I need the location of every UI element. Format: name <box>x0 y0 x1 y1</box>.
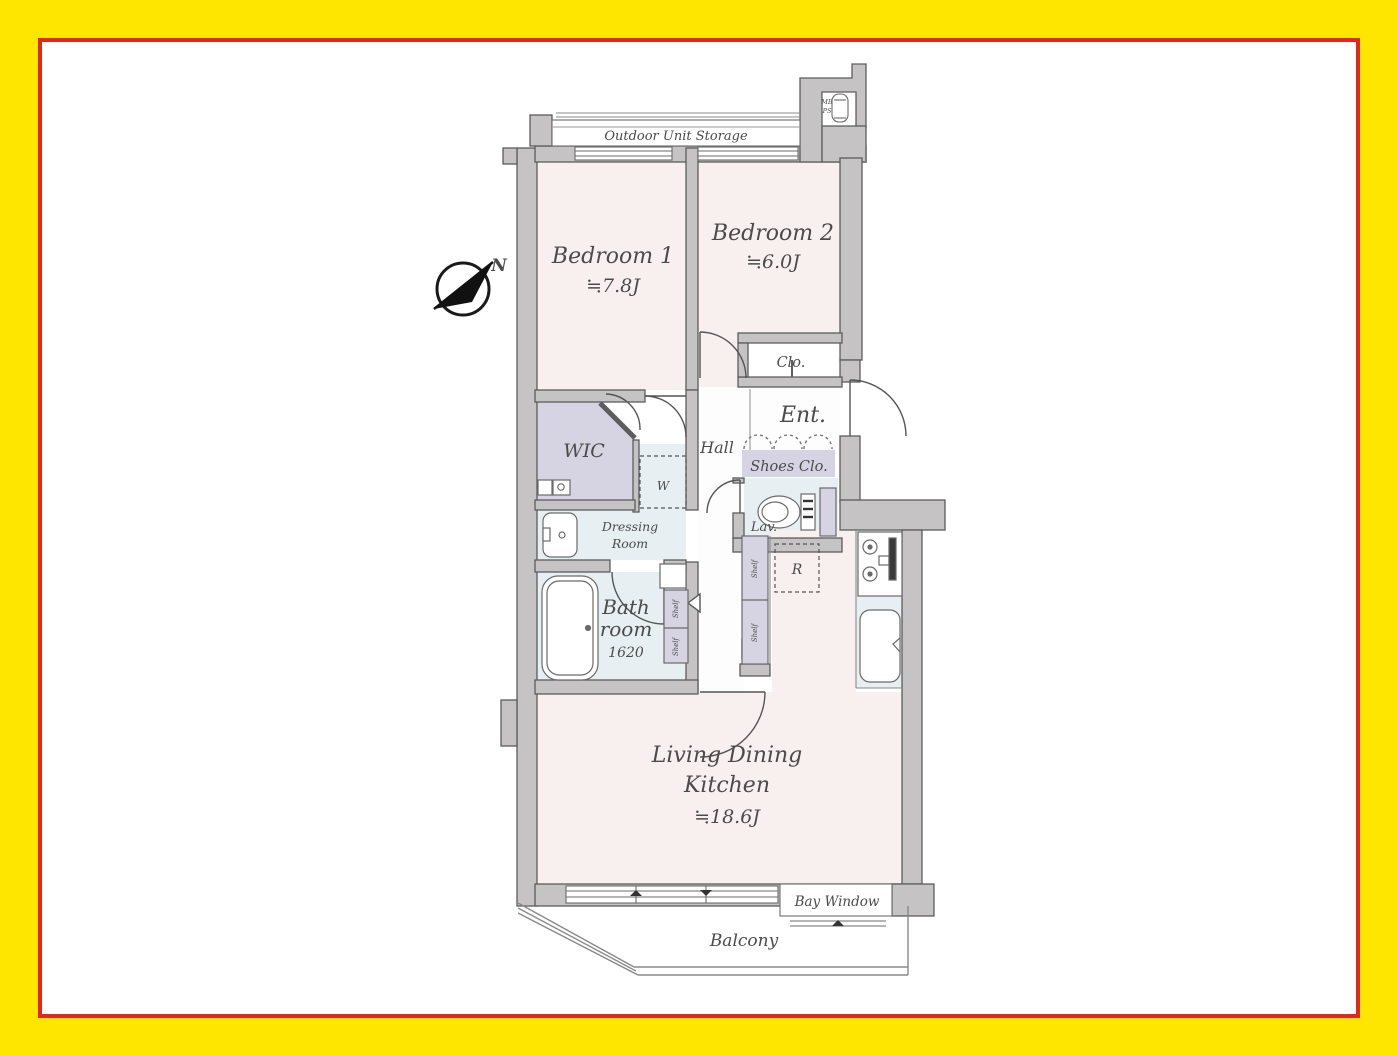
wall-clo-bottom <box>738 377 842 387</box>
page: { "frame": { "outer_color": "#ffe600", "… <box>0 0 1398 1056</box>
wall-right-bedroom2 <box>840 158 862 360</box>
label-bedroom1-area: ≒7.8J <box>586 275 641 297</box>
label-outdoor-unit-storage: Outdoor Unit Storage <box>604 129 748 144</box>
label-hall: Hall <box>699 438 734 457</box>
wall-bath-ldk <box>535 680 698 694</box>
label-shoes-clo: Shoes Clo. <box>750 459 827 475</box>
ldk-arm-floor <box>772 530 856 692</box>
floor-plan: N Outdoor Unit Storage MB PS Bedroom 1 ≒… <box>0 0 1398 1056</box>
wall-ent-top-stub <box>840 360 860 382</box>
door-bedroom1 <box>645 396 686 437</box>
wic-cabinet <box>553 480 570 495</box>
window-ldk <box>566 886 778 903</box>
wall-bay-side <box>892 884 934 916</box>
label-washer: W <box>657 479 671 493</box>
wall-shelf-cap <box>740 664 770 676</box>
wall-bedroom1-bottom <box>535 390 645 402</box>
compass: N <box>434 256 508 315</box>
washbasin-tap <box>543 528 550 541</box>
bedroom2-floor <box>698 160 845 340</box>
door-entrance <box>850 380 906 436</box>
label-bedroom2-name: Bedroom 2 <box>711 221 834 246</box>
washer-nook-floor <box>634 444 686 512</box>
label-fridge: R <box>791 562 803 578</box>
label-bedroom1-name: Bedroom 1 <box>551 244 674 269</box>
wall-left-pilaster <box>501 700 517 746</box>
balcony-diagonal <box>518 903 634 967</box>
lav-cabinet <box>820 488 836 536</box>
corridor-floor <box>698 452 744 692</box>
window-bedroom1 <box>575 147 672 160</box>
balcony-diagonal <box>518 913 638 975</box>
stove-burner-dot <box>868 545 872 549</box>
label-bay-window: Bay Window <box>794 894 880 910</box>
label-ps: PS <box>822 107 832 115</box>
wall-bedroom-divider <box>686 148 698 390</box>
stove-burner-dot <box>868 572 872 576</box>
wic-cabinet <box>538 480 552 495</box>
wall-dressing-bath-left <box>535 560 610 572</box>
wall-left-cap <box>503 148 517 164</box>
label-ldk-2: Kitchen <box>683 773 770 798</box>
label-bath-1: Bath <box>601 595 650 619</box>
label-dressing-2: Room <box>611 536 648 551</box>
label-shelf: Shelf <box>672 636 680 656</box>
label-bath-size: 1620 <box>608 645 644 661</box>
wall-ent-bottom-stub <box>840 436 860 502</box>
label-bath-2: room <box>600 617 653 641</box>
wall-band-right <box>840 500 945 530</box>
label-shelf: Shelf <box>751 622 759 642</box>
label-balcony: Balcony <box>709 931 779 951</box>
label-lav: Lav. <box>750 520 777 535</box>
label-shelf: Shelf <box>751 558 759 578</box>
label-mb: MB <box>820 98 833 106</box>
wall-hall-left-upper <box>686 390 698 510</box>
label-ldk-area: ≒18.6J <box>694 806 761 828</box>
wall-storage-endcap <box>530 115 552 146</box>
label-shelf: Shelf <box>672 598 680 618</box>
wall-lav-left-bottom <box>733 513 744 538</box>
label-clo: Clo. <box>777 355 806 371</box>
window-bedroom2 <box>698 147 798 160</box>
bathtub-drain <box>586 626 591 631</box>
wall-right-ldk <box>902 530 922 906</box>
label-ldk-1: Living Dining <box>651 743 803 768</box>
wall-clo-top <box>738 333 842 343</box>
corridor-cabinet <box>660 564 686 588</box>
label-ent: Ent. <box>779 403 826 428</box>
wall-left <box>517 148 537 906</box>
stove-panel <box>889 538 896 580</box>
label-wic: WIC <box>563 440 605 462</box>
toilet-tank <box>801 494 815 530</box>
compass-north-label: N <box>490 256 508 276</box>
balcony-diagonal <box>518 908 636 971</box>
label-bedroom2-area: ≒6.0J <box>746 251 801 273</box>
label-dressing-1: Dressing <box>601 519 658 534</box>
wall-wic-dressing <box>535 500 635 510</box>
wall-mbps-base <box>822 126 866 162</box>
